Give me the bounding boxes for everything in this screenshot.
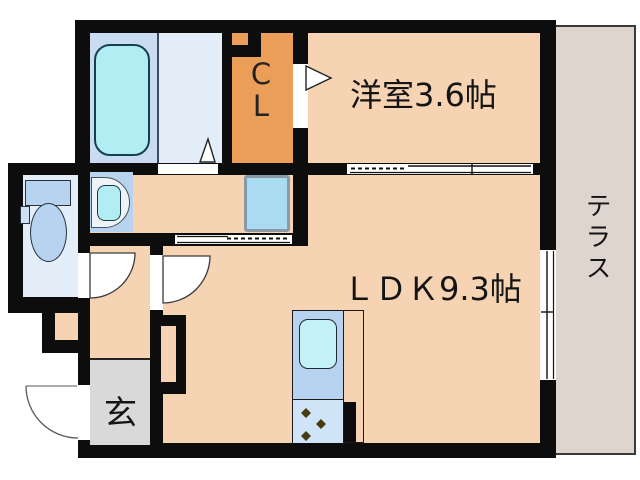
closet-label-line1: C: [251, 57, 271, 91]
bath-door-gap: [158, 164, 218, 174]
washbasin-bowl: [97, 185, 121, 221]
kitchen-unit-stove-zone: [293, 399, 344, 443]
pipe-space-inner: [161, 326, 176, 382]
terrace-sliding-window: [540, 250, 556, 380]
entrance-label: 玄: [104, 386, 137, 434]
floorplan: 洋室3.6帖 ＬＤＫ9.3帖 C L テラス 玄: [0, 0, 640, 480]
wall-closet-notch-h: [232, 45, 261, 57]
wall-bath-closet-divider: [222, 20, 232, 175]
toilet-door-gap: [78, 253, 90, 298]
washing-machine-space: [244, 175, 290, 232]
wall-top: [75, 20, 556, 33]
wall-bath-left: [75, 20, 90, 175]
wall-right-upper: [540, 20, 556, 250]
wall-toilet-left: [8, 163, 23, 313]
closet-label-line2: L: [253, 89, 269, 123]
entrance-door-gap: [77, 385, 90, 440]
toilet-handle: [20, 206, 30, 224]
kitchen-sink: [299, 319, 337, 369]
closet-label: C L: [240, 58, 282, 122]
closet-door-gap: [293, 64, 308, 128]
bath-floor: [157, 33, 222, 163]
ldk-door-gap: [150, 255, 163, 310]
entrance-door-swing: [26, 386, 78, 438]
terrace-label: テラス: [578, 192, 615, 285]
wall-entrance-left-lower: [78, 440, 90, 458]
bathtub: [94, 44, 150, 156]
washroom-sliding-door: [175, 235, 292, 244]
wall-ldk-left-upper: [150, 233, 163, 255]
ldk-label: ＬＤＫ9.3帖: [343, 264, 522, 310]
wall-toilet-right-b: [78, 298, 90, 385]
toilet-bowl: [30, 203, 67, 262]
western-room-label: 洋室3.6帖: [350, 70, 497, 116]
western-sliding-door: [347, 164, 533, 174]
